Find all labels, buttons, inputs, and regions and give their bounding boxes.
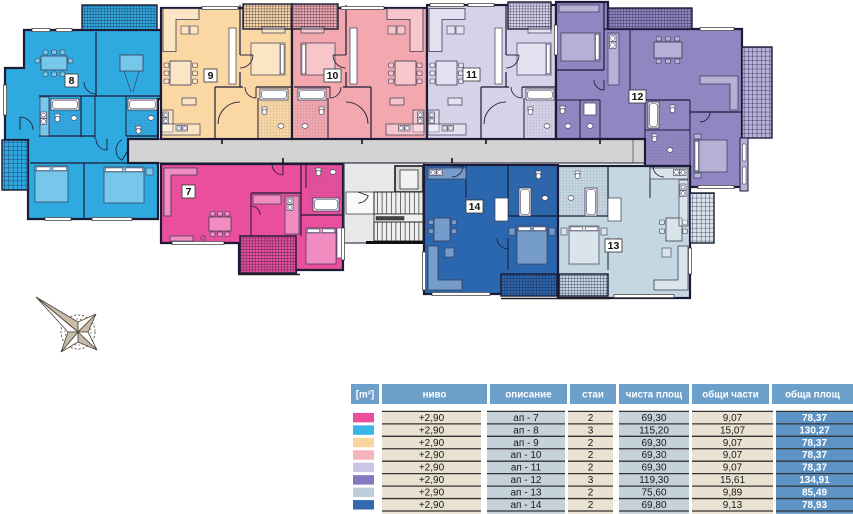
svg-text:стаи: стаи [582, 390, 604, 401]
svg-text:14: 14 [469, 201, 481, 213]
svg-text:+2,90: +2,90 [419, 450, 445, 461]
svg-text:9,07: 9,07 [723, 438, 743, 449]
svg-text:78,37: 78,37 [802, 438, 827, 449]
svg-text:15,61: 15,61 [720, 475, 745, 486]
svg-text:+2,90: +2,90 [419, 463, 445, 474]
svg-text:ап - 9: ап - 9 [513, 438, 539, 449]
svg-text:+2,90: +2,90 [419, 425, 445, 436]
svg-text:9,89: 9,89 [723, 488, 743, 499]
svg-text:7: 7 [186, 186, 192, 198]
svg-text:75,60: 75,60 [641, 488, 666, 499]
svg-text:69,30: 69,30 [641, 463, 666, 474]
svg-text:69,30: 69,30 [641, 450, 666, 461]
svg-text:69,80: 69,80 [641, 500, 666, 511]
svg-text:78,37: 78,37 [802, 413, 827, 424]
svg-text:12: 12 [632, 91, 644, 103]
svg-text:2: 2 [588, 500, 594, 511]
svg-text:описание: описание [505, 390, 552, 401]
svg-text:ап - 10: ап - 10 [511, 450, 542, 461]
svg-text:3: 3 [588, 425, 594, 436]
svg-text:+2,90: +2,90 [419, 500, 445, 511]
svg-text:2: 2 [588, 413, 594, 424]
svg-text:85,49: 85,49 [802, 488, 827, 499]
svg-text:чиста площ: чиста площ [626, 390, 683, 401]
svg-text:69,30: 69,30 [641, 413, 666, 424]
svg-text:2: 2 [588, 450, 594, 461]
svg-text:134,91: 134,91 [799, 475, 830, 486]
svg-text:ниво: ниво [423, 390, 447, 401]
svg-text:8: 8 [69, 75, 75, 87]
svg-text:общи части: общи части [702, 390, 758, 401]
svg-text:2: 2 [588, 463, 594, 474]
svg-text:78,37: 78,37 [802, 463, 827, 474]
svg-text:9,07: 9,07 [723, 463, 743, 474]
svg-text:2: 2 [588, 488, 594, 499]
svg-text:+2,90: +2,90 [419, 475, 445, 486]
svg-text:78,93: 78,93 [802, 500, 827, 511]
svg-text:[m²]: [m²] [356, 390, 375, 401]
svg-text:9,07: 9,07 [723, 450, 743, 461]
svg-text:ап - 12: ап - 12 [511, 475, 542, 486]
svg-text:78,37: 78,37 [802, 450, 827, 461]
svg-text:ап - 8: ап - 8 [513, 425, 539, 436]
svg-text:9,13: 9,13 [723, 500, 743, 511]
svg-text:10: 10 [327, 70, 339, 82]
svg-text:13: 13 [608, 240, 620, 252]
svg-text:130,27: 130,27 [799, 425, 830, 436]
svg-text:15,07: 15,07 [720, 425, 745, 436]
svg-text:ап - 13: ап - 13 [511, 488, 542, 499]
svg-text:ап - 7: ап - 7 [513, 413, 539, 424]
svg-text:69,30: 69,30 [641, 438, 666, 449]
svg-text:+2,90: +2,90 [419, 488, 445, 499]
svg-text:11: 11 [466, 69, 477, 81]
svg-text:обща площ: обща площ [785, 390, 841, 401]
svg-text:ап - 11: ап - 11 [511, 463, 542, 474]
svg-text:115,20: 115,20 [639, 425, 669, 436]
svg-text:+2,90: +2,90 [419, 413, 445, 424]
svg-text:9: 9 [208, 70, 214, 82]
svg-text:+2,90: +2,90 [419, 438, 445, 449]
svg-text:ап - 14: ап - 14 [511, 500, 542, 511]
svg-text:3: 3 [588, 475, 594, 486]
svg-text:2: 2 [588, 438, 594, 449]
svg-text:9,07: 9,07 [723, 413, 743, 424]
svg-text:119,30: 119,30 [639, 475, 669, 486]
